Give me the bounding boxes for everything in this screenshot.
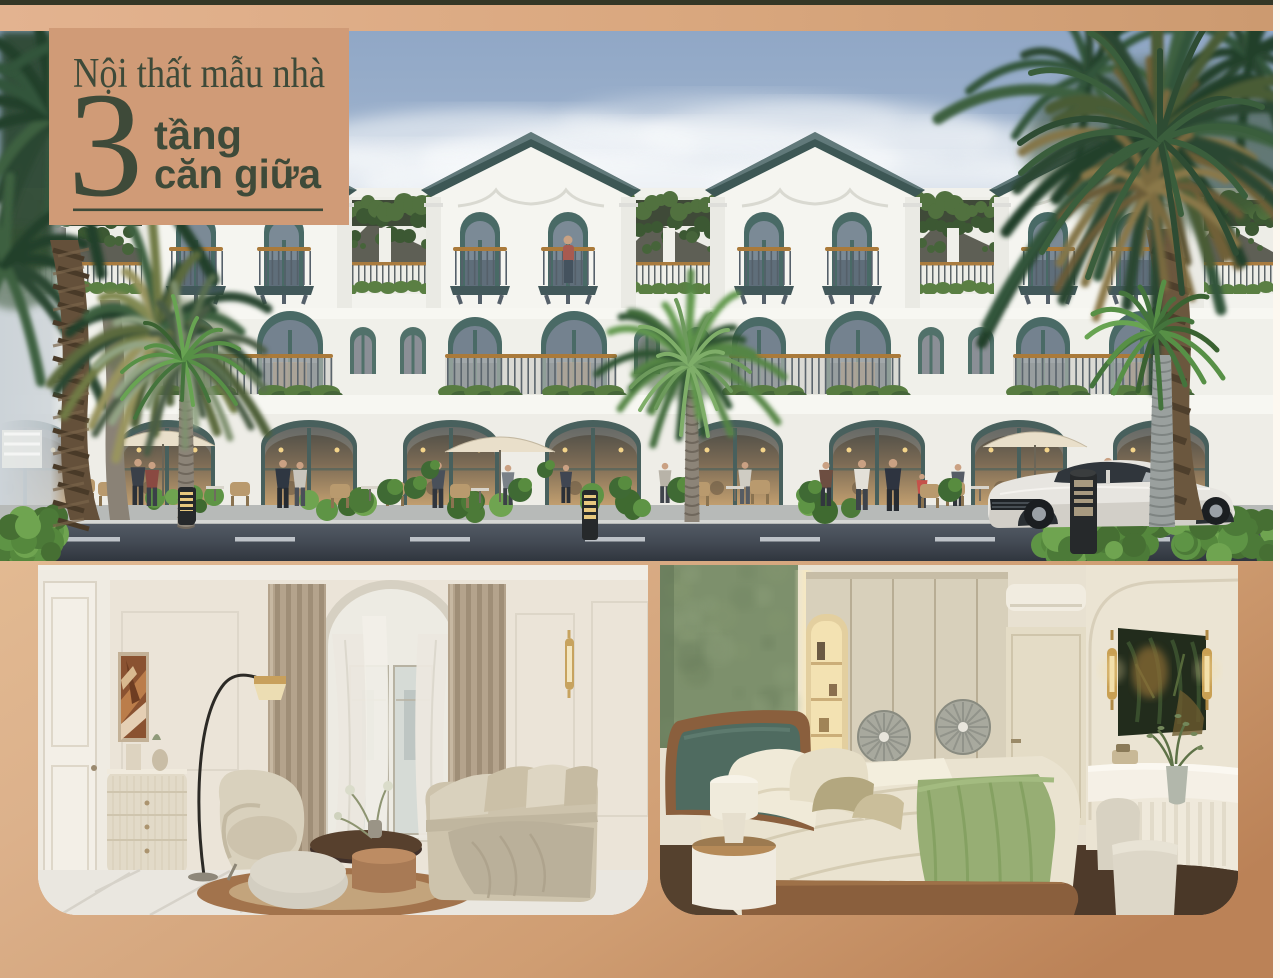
svg-text:3: 3	[68, 62, 143, 228]
svg-text:căn giữa: căn giữa	[154, 151, 322, 197]
